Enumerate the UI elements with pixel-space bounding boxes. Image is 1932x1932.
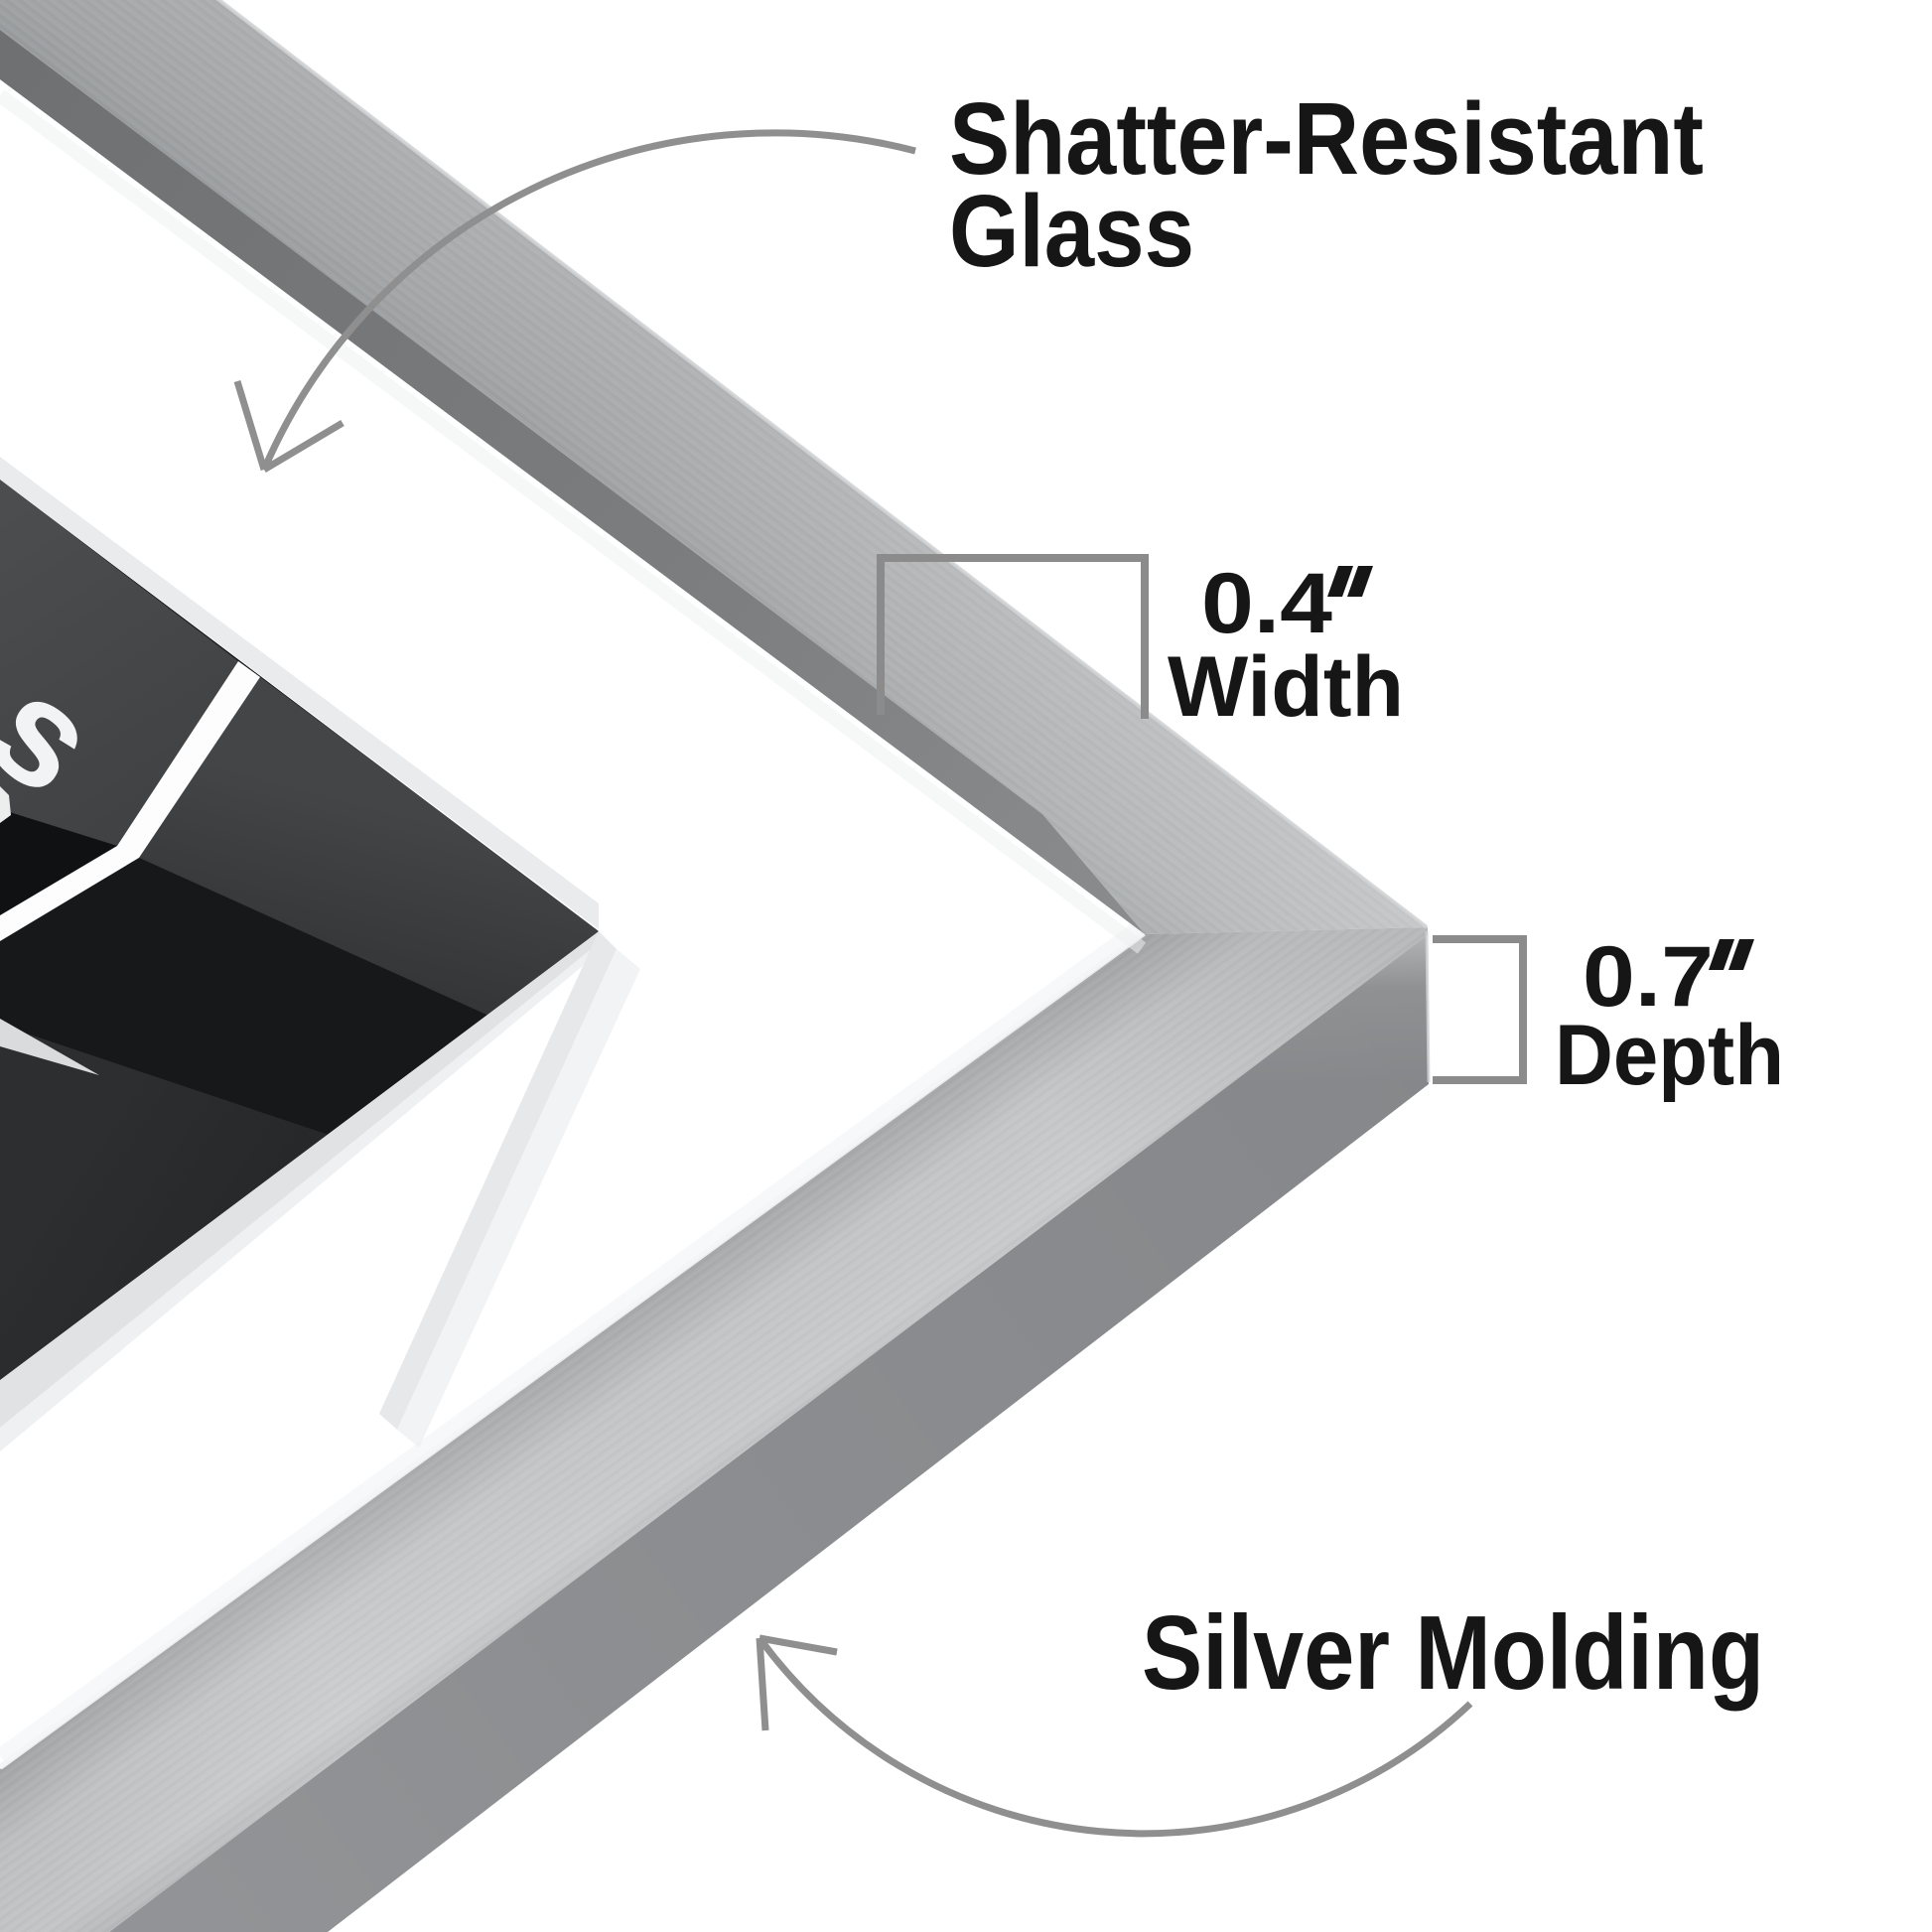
- svg-text:Depth: Depth: [1555, 1008, 1784, 1103]
- svg-text:Glass: Glass: [949, 174, 1194, 288]
- svg-text:Silver Molding: Silver Molding: [1142, 1594, 1764, 1712]
- svg-text:Width: Width: [1168, 639, 1404, 735]
- svg-text:0.4: 0.4: [1201, 556, 1332, 651]
